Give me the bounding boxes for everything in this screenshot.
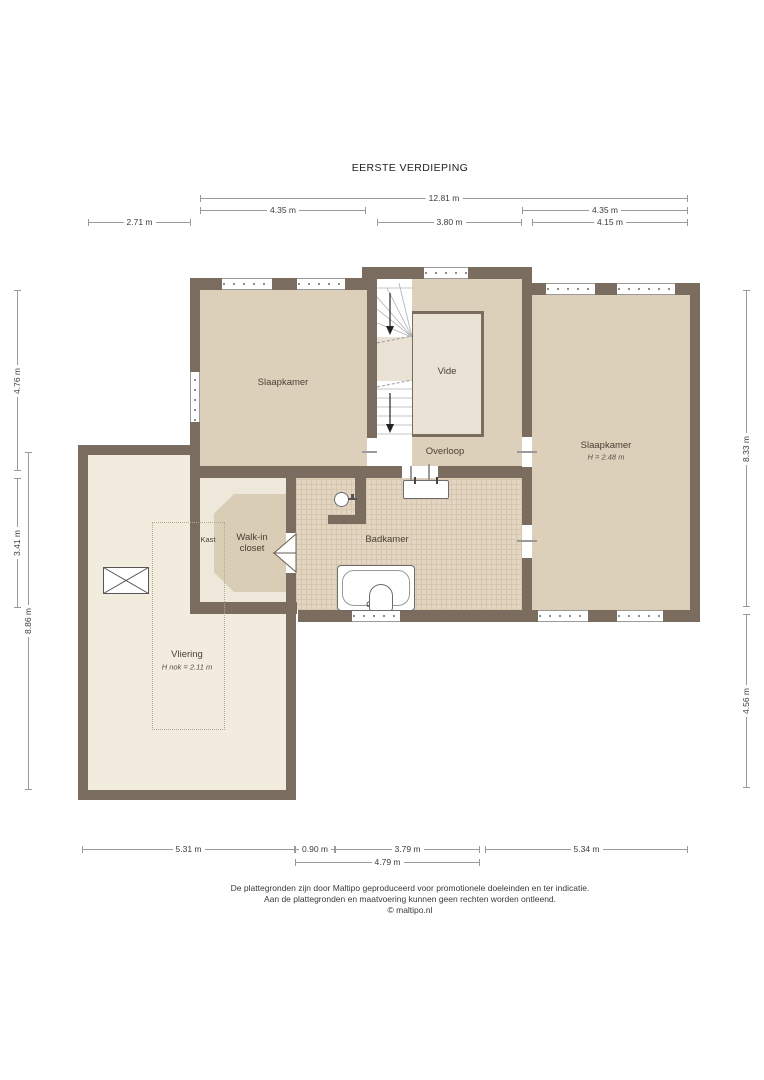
room-label-walk-in-closet: Walk-in — [236, 533, 267, 544]
window — [222, 278, 272, 290]
wall — [78, 445, 190, 455]
wall — [522, 467, 532, 525]
room-label-vliering: Vliering — [171, 650, 203, 661]
door-mark — [517, 540, 537, 542]
wall — [690, 283, 700, 622]
sink-tap-icon — [351, 494, 354, 500]
dimension-bottom-vliering: 5.31 m — [82, 845, 295, 853]
wall — [468, 267, 532, 279]
window — [546, 283, 595, 295]
wall — [522, 558, 532, 610]
window — [617, 610, 663, 622]
window — [538, 610, 588, 622]
wall — [272, 278, 297, 290]
wall — [595, 283, 617, 295]
footer-disclaimer-line1: De plattegronden zijn door Maltipo gepro… — [28, 883, 764, 893]
dimension-top-stairs: 3.80 m — [377, 218, 522, 226]
low-ceiling-dashed-outline — [152, 522, 225, 730]
dimension-bottom-badkamer-total: 4.79 m — [295, 858, 480, 866]
room-label-bedroom-left: Slaapkamer — [258, 378, 309, 389]
dimension-top-left-room: 4.35 m — [200, 206, 366, 214]
floorplan-page: EERSTE VERDIEPING — [0, 0, 764, 1080]
window — [617, 283, 675, 295]
room-label-badkamer: Badkamer — [365, 535, 408, 546]
dimension-top-bedroom-right: 4.15 m — [532, 218, 688, 226]
wall — [78, 790, 296, 800]
stairs-diagram — [377, 279, 412, 466]
room-note-vliering-height: H nok = 2.11 m — [162, 663, 213, 672]
dimension-left-vliering: 8.86 m — [24, 452, 32, 790]
wall — [190, 278, 200, 372]
room-label-bedroom-right: Slaapkamer — [581, 441, 632, 452]
vanity-tap-icon — [436, 477, 438, 484]
door-mark — [410, 464, 412, 480]
dimension-right-bedroom: 8.33 m — [742, 290, 750, 607]
room-note-bedroom-right-height: H = 2.48 m — [588, 453, 625, 462]
dimension-top-vliering-offset: 2.71 m — [88, 218, 191, 226]
dimension-bottom-gap: 0.90 m — [295, 845, 335, 853]
wall — [438, 466, 532, 478]
vanity-tap-icon — [414, 477, 416, 484]
wall — [286, 466, 296, 533]
wall — [298, 610, 352, 622]
hatch-icon — [103, 567, 149, 594]
wall — [328, 515, 366, 524]
toilet — [369, 584, 393, 611]
wall — [588, 610, 617, 622]
room-label-overloop: Overloop — [426, 447, 465, 458]
door-mark — [517, 451, 537, 453]
window — [190, 372, 200, 422]
wall — [78, 445, 88, 800]
vanity — [403, 480, 449, 499]
wall — [367, 278, 377, 438]
footer-disclaimer-line2: Aan de plattegronden en maatvoering kunn… — [28, 894, 764, 904]
door-opening — [402, 466, 438, 478]
wall — [522, 279, 532, 437]
page-title: EERSTE VERDIEPING — [352, 162, 469, 174]
wall — [400, 610, 532, 622]
dimension-top-total: 12.81 m — [200, 194, 688, 202]
room-label-kast: Kast — [200, 535, 215, 546]
wall — [286, 612, 296, 800]
wall — [190, 466, 402, 478]
door-mark — [428, 464, 430, 480]
dimension-left-closet: 3.41 m — [13, 478, 21, 608]
window — [297, 278, 345, 290]
wall — [663, 610, 700, 622]
footer-copyright: © maltipo.nl — [28, 905, 764, 915]
window — [424, 267, 468, 279]
dimension-bottom-badkamer: 3.79 m — [335, 845, 480, 853]
room-label-walk-in-closet: closet — [240, 544, 265, 555]
dimension-right-lower: 4.56 m — [742, 614, 750, 788]
dimension-left-bedroom: 4.76 m — [13, 290, 21, 471]
sink — [334, 492, 349, 507]
wall — [532, 283, 546, 295]
room-label-vide: Vide — [438, 367, 457, 378]
dimension-top-right-room: 4.35 m — [522, 206, 688, 214]
door-opening — [522, 525, 532, 558]
dimension-bottom-bedroom: 5.34 m — [485, 845, 688, 853]
double-door-icon — [268, 530, 298, 576]
